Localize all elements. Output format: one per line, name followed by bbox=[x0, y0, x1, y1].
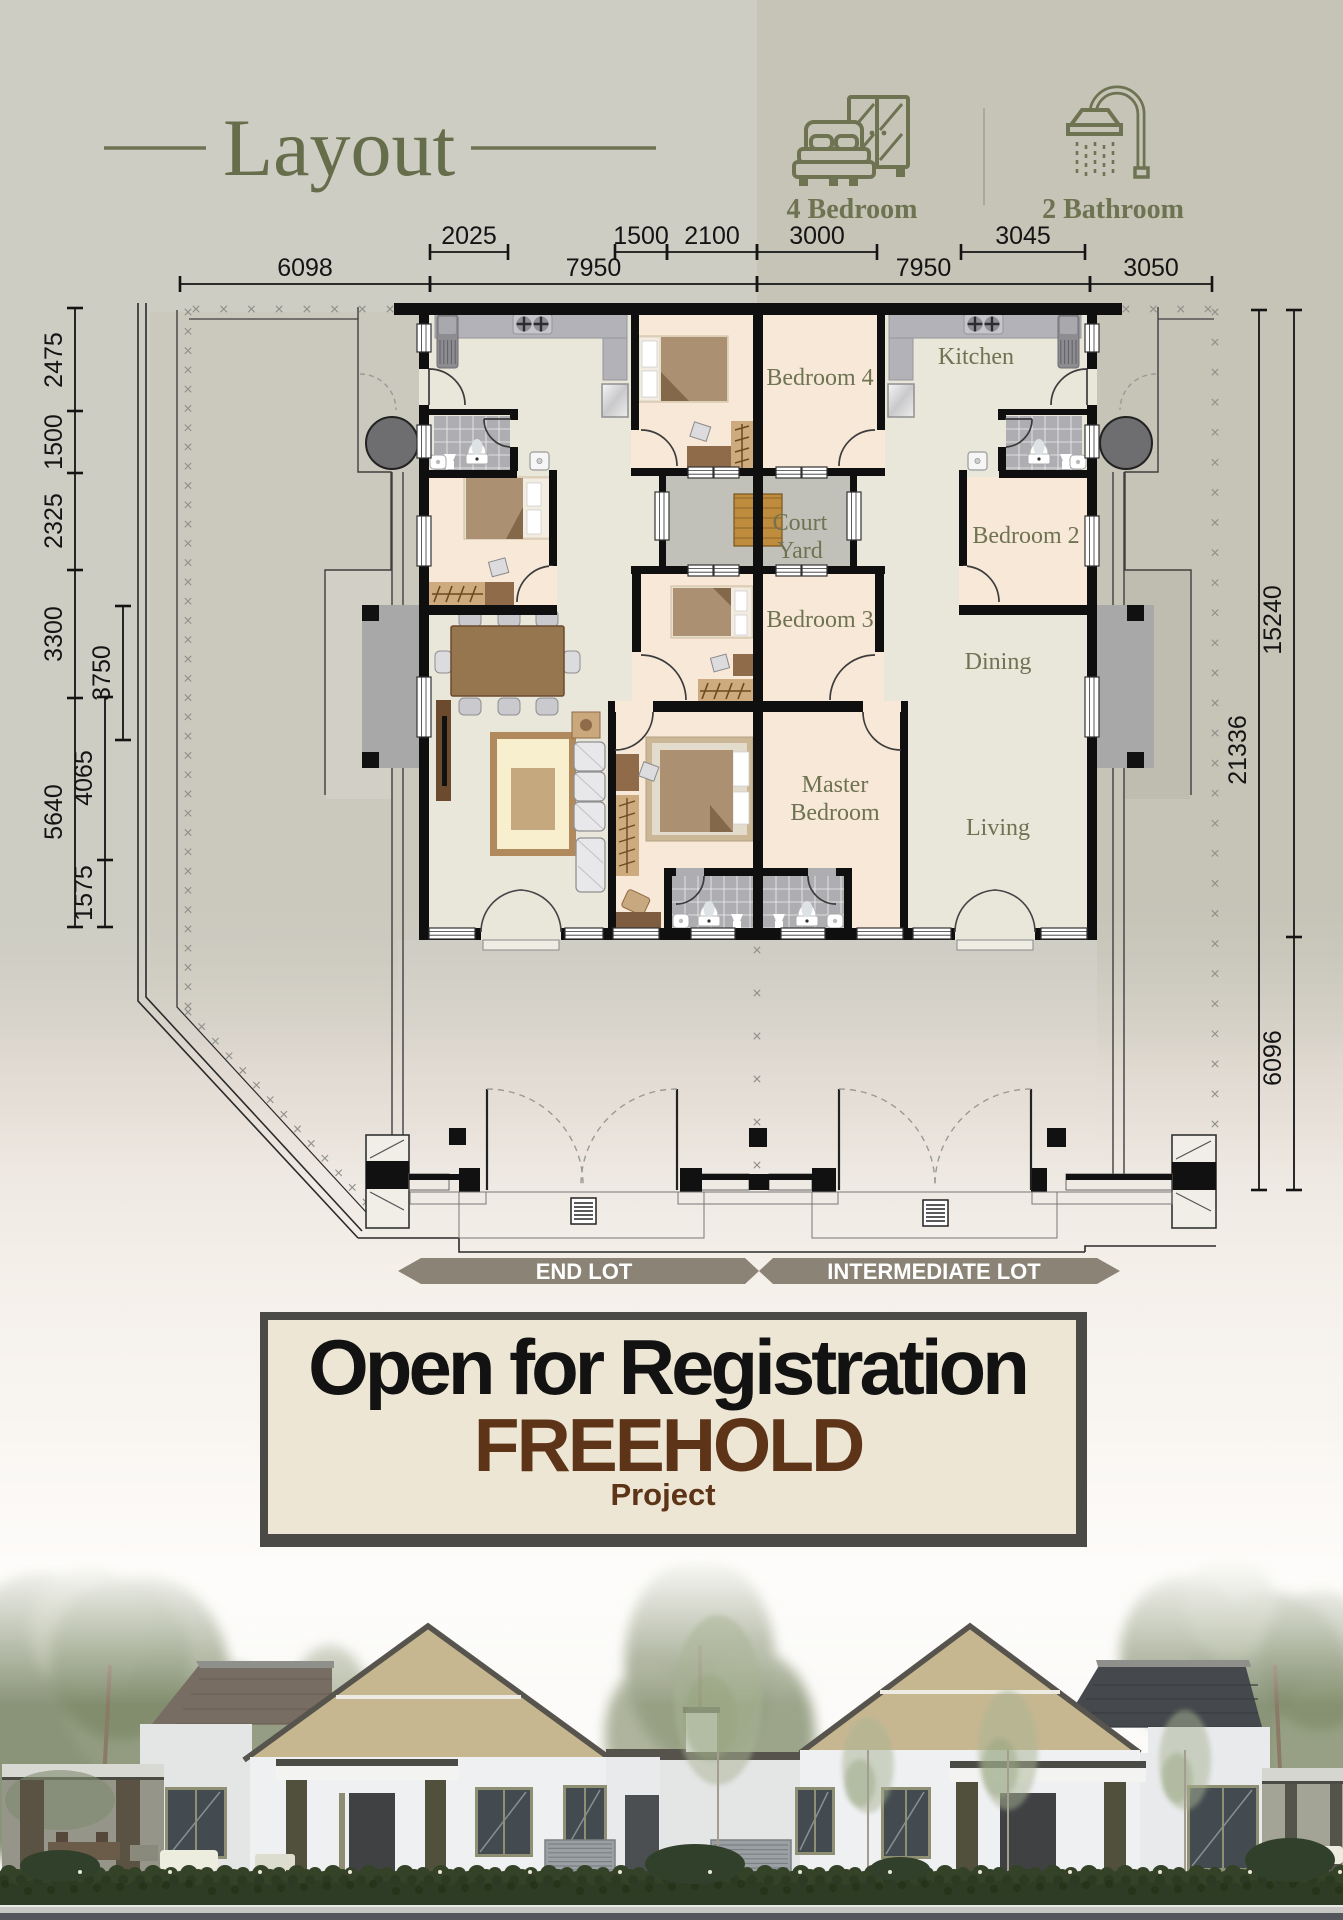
svg-text:Kitchen: Kitchen bbox=[938, 344, 1014, 370]
svg-text:6098: 6098 bbox=[277, 254, 333, 282]
svg-text:Open for Registration: Open for Registration bbox=[308, 1323, 1026, 1411]
svg-text:4065: 4065 bbox=[70, 750, 98, 806]
svg-text:Yard: Yard bbox=[777, 538, 823, 564]
svg-text:5640: 5640 bbox=[40, 784, 68, 840]
svg-text:4 Bedroom: 4 Bedroom bbox=[787, 194, 918, 225]
svg-text:3000: 3000 bbox=[789, 222, 845, 250]
svg-text:1575: 1575 bbox=[70, 865, 98, 921]
svg-text:INTERMEDIATE LOT: INTERMEDIATE LOT bbox=[827, 1259, 1041, 1284]
svg-text:Master: Master bbox=[802, 772, 869, 798]
svg-text:Bedroom 2: Bedroom 2 bbox=[972, 523, 1079, 549]
svg-text:Layout: Layout bbox=[223, 102, 455, 193]
svg-text:Bedroom 3: Bedroom 3 bbox=[766, 607, 873, 633]
svg-text:FREEHOLD: FREEHOLD bbox=[474, 1403, 863, 1487]
svg-text:END LOT: END LOT bbox=[536, 1259, 633, 1284]
svg-text:3045: 3045 bbox=[995, 222, 1051, 250]
svg-text:1500: 1500 bbox=[613, 222, 669, 250]
svg-text:7950: 7950 bbox=[566, 254, 622, 282]
svg-text:2475: 2475 bbox=[40, 332, 68, 388]
svg-text:3750: 3750 bbox=[88, 645, 116, 701]
svg-text:Bedroom: Bedroom bbox=[790, 800, 880, 826]
svg-text:Living: Living bbox=[966, 815, 1030, 841]
svg-text:7950: 7950 bbox=[896, 254, 952, 282]
svg-text:15240: 15240 bbox=[1259, 585, 1287, 655]
svg-text:1500: 1500 bbox=[40, 414, 68, 470]
svg-text:21336: 21336 bbox=[1224, 715, 1252, 785]
svg-text:2100: 2100 bbox=[684, 222, 740, 250]
svg-text:Project: Project bbox=[610, 1477, 715, 1512]
svg-text:3300: 3300 bbox=[40, 606, 68, 662]
svg-text:Dining: Dining bbox=[965, 649, 1032, 675]
svg-text:3050: 3050 bbox=[1123, 254, 1179, 282]
svg-text:6096: 6096 bbox=[1259, 1030, 1287, 1086]
svg-text:Bedroom 4: Bedroom 4 bbox=[766, 365, 873, 391]
svg-text:2325: 2325 bbox=[40, 493, 68, 549]
svg-text:2025: 2025 bbox=[441, 222, 497, 250]
svg-text:Court: Court bbox=[773, 510, 828, 536]
svg-text:2 Bathroom: 2 Bathroom bbox=[1042, 194, 1184, 225]
